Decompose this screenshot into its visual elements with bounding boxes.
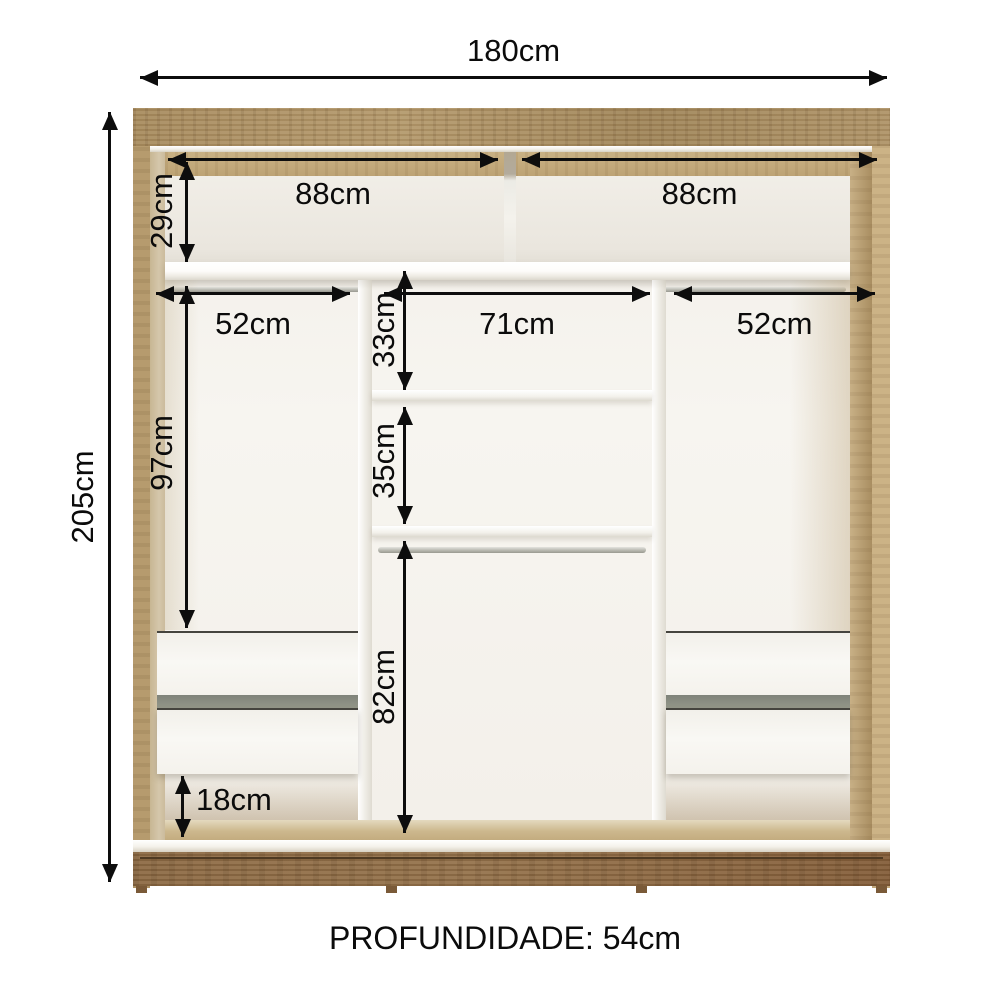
dim-arrow-total-width [140,76,887,79]
dim-label-left-hanging-height: 97cm [144,383,182,523]
cabinet-top-panel [133,108,890,146]
cabinet-foot-2 [386,886,397,893]
dim-label-center-hanging-height: 82cm [366,617,404,757]
left-drawer-gap [157,695,358,708]
dim-arrow-top-right-width [522,158,877,161]
center-column-right-wall [652,280,666,820]
cabinet-base-groove [140,857,883,859]
depth-label: PROFUNDIDADE: 54cm [253,919,757,957]
right-under-drawer-shade [666,775,850,820]
dim-arrow-top-left-width [168,158,498,161]
right-drawer-gap [666,695,850,708]
dim-label-center-width: 71cm [384,306,650,342]
dim-arrow-top-section-height [185,162,188,262]
right-drawer-top[interactable] [666,631,850,697]
left-drawer-top[interactable] [157,631,358,697]
dim-label-under-drawer-clearance: 18cm [196,782,272,818]
center-hanging-rod [378,547,646,553]
cabinet-foot-1 [136,886,147,893]
center-lower-shelf [372,526,652,537]
main-shelf [165,262,850,280]
left-drawer-bottom[interactable] [157,708,358,774]
dim-label-total-width: 180cm [140,33,887,69]
cabinet-right-wall-inner [850,152,872,852]
cabinet-floor-panel [165,820,850,840]
dim-label-top-left-width: 88cm [168,176,498,212]
dim-arrow-right-rod-width [674,292,875,295]
dim-label-center-lower-height: 35cm [366,391,404,531]
dim-label-total-height: 205cm [65,427,103,567]
dim-arrow-left-hanging-height [185,286,188,628]
cabinet-foot-3 [636,886,647,893]
wardrobe-dimension-diagram: 180cm 205cm 88cm 88c [0,0,1000,1000]
cabinet-foot-4 [876,886,887,893]
dim-label-top-right-width: 88cm [522,176,877,212]
cabinet-right-wall-outer [872,146,890,888]
center-upper-shelf [372,390,652,401]
dim-label-top-section-height: 29cm [144,141,182,281]
top-cubby-center-divider [504,152,516,262]
dim-label-right-rod-width: 52cm [674,306,875,342]
dim-arrow-center-width [384,292,650,295]
cabinet-bottom-sliding-rail [133,840,890,852]
dim-arrow-total-height [108,112,111,882]
right-drawer-bottom[interactable] [666,708,850,774]
dim-label-center-upper-height: 33cm [366,260,404,400]
dim-arrow-under-drawer-clearance [181,776,184,837]
